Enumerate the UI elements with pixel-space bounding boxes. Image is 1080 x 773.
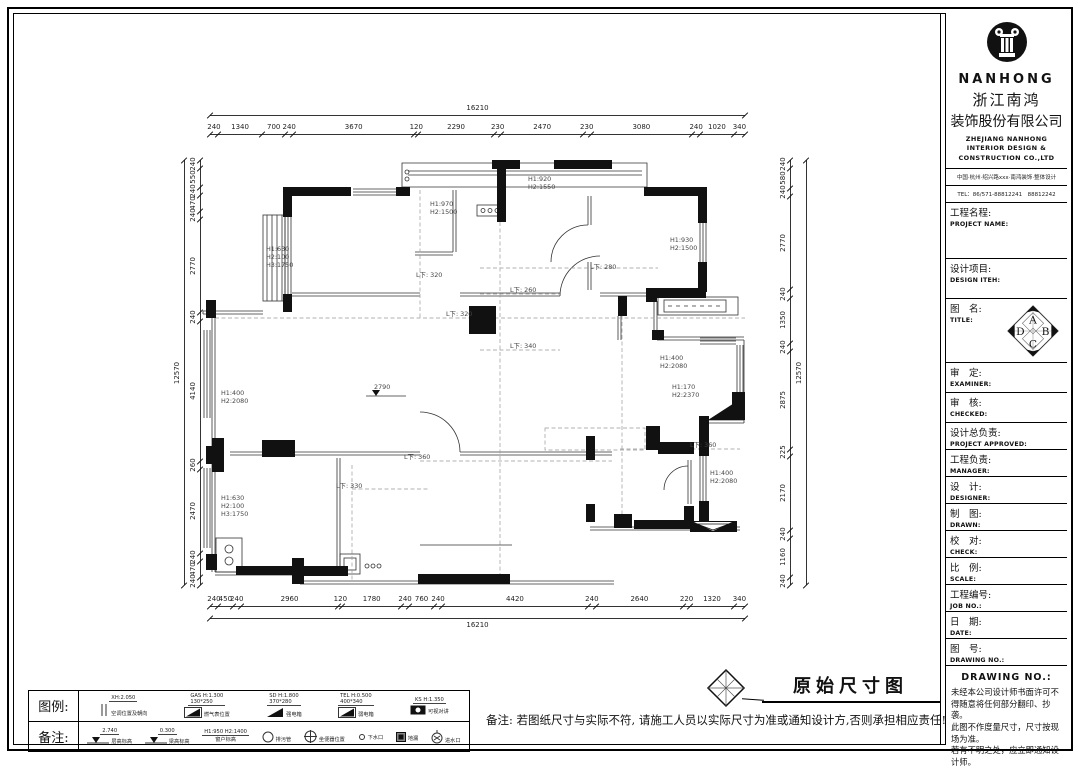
dim-value: 260 <box>189 458 197 471</box>
plan-annotation: L下: 320 <box>446 310 472 318</box>
company-address: 中国·杭州·绍兴路xxx·南鸿装饰·整体设计 <box>946 168 1067 185</box>
notice-title: DRAWING NO.: <box>951 672 1062 683</box>
dim-value: 1160 <box>779 548 787 566</box>
legend-item-label: 窗户标高 <box>215 737 236 743</box>
legend-row-label: 图例: <box>29 691 79 721</box>
dim-value: 120 <box>334 595 347 603</box>
dim-value: 230 <box>491 123 504 131</box>
dim-value: 2770 <box>189 257 197 275</box>
dim-value: 240 <box>779 157 787 170</box>
dim-value: 120 <box>410 123 423 131</box>
plan-annotation: H1:970 <box>430 200 453 208</box>
dim-value: 240 <box>779 341 787 354</box>
field-label-cn: 设 计: <box>950 479 1063 493</box>
dim-value: 4420 <box>506 595 524 603</box>
plan-annotation: H2:1550 <box>528 183 555 191</box>
field-label-en: DRAWING NO.: <box>950 656 1063 665</box>
dim-value: 550 <box>189 171 197 184</box>
plan-annotation: L下: 320 <box>416 271 442 279</box>
dim-value: 2640 <box>630 595 648 603</box>
dim-value: 240 <box>431 595 444 603</box>
titleblock-field-manager: 工程负责:MANAGER: <box>946 450 1067 477</box>
dim-value: 2960 <box>281 595 299 603</box>
svg-text:A: A <box>1028 314 1037 327</box>
dim-value: 12570 <box>795 361 803 383</box>
dim-value: 3670 <box>345 123 363 131</box>
legend-item-code: SD H:1.800370*280 <box>267 693 300 706</box>
company-stamp-icon <box>706 668 746 708</box>
legend-item-label: 可视对讲 <box>428 709 449 715</box>
legend-item: GAS H:1.300130*250燃气表位置 <box>184 693 230 718</box>
company-name-cn-2: 装饰股份有限公司 <box>946 111 1067 131</box>
plan-annotation: L下: 330 <box>336 482 362 490</box>
plan-annotation: L下: 340 <box>510 342 536 350</box>
field-label-en: CHECK: <box>950 548 1063 557</box>
notice-line: 此图不作度量尺寸，尺寸按现场为准。 <box>951 722 1062 745</box>
legend-item-code: KS H:1.350 <box>413 697 446 704</box>
orientation-compass: A B C D <box>1005 303 1061 359</box>
dim-value: 1350 <box>779 312 787 330</box>
svg-text:C: C <box>1029 338 1037 351</box>
field-label-cn: 工程编号: <box>950 587 1063 601</box>
plan-annotation: H2:2080 <box>660 362 687 370</box>
dim-value: 700 <box>267 123 280 131</box>
field-label-en: PROJECT APPROVED: <box>950 440 1063 449</box>
notice-line: 未经本公司设计师书面许可不得随意将任何部分翻印、抄袭。 <box>951 687 1062 722</box>
titleblock-outer-line <box>940 13 941 745</box>
legend-item-label: 进水口 <box>445 738 461 744</box>
legend-item-label: 弱电箱 <box>358 712 374 718</box>
sewage-pipe-icon <box>262 731 274 743</box>
dim-value: 1020 <box>708 123 726 131</box>
dim-value: 340 <box>733 595 746 603</box>
field-label-en: MANAGER: <box>950 467 1063 476</box>
dim-value: 760 <box>415 595 428 603</box>
titleblock-field-scale: 比 例:SCALE: <box>946 558 1067 585</box>
dim-value: 1320 <box>703 595 721 603</box>
legend-item: 2.740层高标高 <box>87 728 132 745</box>
legend-row: 图例: XH:2.050空调位置及朝向GAS H:1.300130*250燃气表… <box>29 691 469 722</box>
field-label-en: JOB NO.: <box>950 602 1063 611</box>
dim-value: 1340 <box>231 123 249 131</box>
legend-item-label: 层高标高 <box>111 739 132 745</box>
notice-line: 若有不明之处，应立即通知设计师。 <box>951 745 1062 768</box>
plan-annotation: H1:630 <box>266 245 289 253</box>
legend-item: 进水口 <box>431 729 461 744</box>
dim-value: 16210 <box>466 621 488 629</box>
dim-value: 2290 <box>447 123 465 131</box>
field-label-cn: 设计总负责: <box>950 425 1063 439</box>
field-label-cn: 图 号: <box>950 641 1063 655</box>
company-en-line: CONSTRUCTION CO.,LTD <box>946 154 1067 163</box>
dim-value: 2470 <box>189 502 197 520</box>
dim-value: 225 <box>779 446 787 459</box>
drain-outlet-icon <box>358 733 366 741</box>
dim-right-segments: 2405802402770240135024028752252170240116… <box>778 160 792 585</box>
dim-value: 580 <box>779 171 787 184</box>
dim-value: 240 <box>779 185 787 198</box>
dim-value: 240 <box>189 310 197 323</box>
legend-item-label: 坐便器位置 <box>319 737 345 743</box>
company-en-line: INTERIOR DESIGN & <box>946 144 1067 153</box>
plan-annotation: H2:2080 <box>710 477 737 485</box>
legend-item: 地漏 <box>396 731 418 742</box>
dim-value: 12570 <box>173 361 181 383</box>
titleblock-field-job-no: 工程编号:JOB NO.: <box>946 585 1067 612</box>
titleblock-field-drawn: 制 图:DRAWN: <box>946 504 1067 531</box>
company-tel: TEL：86/571-88812241 88812242 <box>946 185 1067 202</box>
legend-item-code: 2.740 <box>100 728 119 735</box>
intercom-icon <box>410 705 426 715</box>
plan-annotation: H2:2080 <box>221 397 248 405</box>
field-label-en: DESIGNER: <box>950 494 1063 503</box>
plan-annotation: H1:400 <box>221 389 244 397</box>
floor-drain-icon <box>396 732 406 742</box>
dim-value: 340 <box>733 123 746 131</box>
svg-text:D: D <box>1016 325 1025 338</box>
plan-annotation: L下: 360 <box>404 453 430 461</box>
field-label-en: SCALE: <box>950 575 1063 584</box>
company-name-cn-1: 浙江南鸿 <box>946 89 1067 110</box>
legend-item-label: 下水口 <box>368 735 384 741</box>
dim-value: 220 <box>680 595 693 603</box>
dim-value: 4140 <box>189 382 197 400</box>
notes-row: 备注: 2.740层高标高0.300梁高标高H1:950 H2:1400窗户标高… <box>29 722 469 752</box>
legend-item-code: GAS H:1.300130*250 <box>188 693 225 706</box>
dim-value: 240 <box>189 574 197 587</box>
company-en-line: ZHEJIANG NANHONG <box>946 135 1067 144</box>
plan-annotation: H2:100 <box>266 253 289 261</box>
plan-annotation: L下: 360 <box>690 441 716 449</box>
field-label-en: PROJECT NAME: <box>950 220 1063 229</box>
legend-item: XH:2.050空调位置及朝向 <box>99 695 147 717</box>
titleblock-field-design-iteh: 设计项目:DESIGN ITEH: <box>946 259 1067 299</box>
level-mark-icon <box>87 736 109 745</box>
dim-value: 2770 <box>779 234 787 252</box>
field-label-en: CHECKED: <box>950 410 1063 419</box>
notice-lines: 未经本公司设计师书面许可不得随意将任何部分翻印、抄袭。此图不作度量尺寸，尺寸按现… <box>951 687 1062 768</box>
field-label-cn: 工程名程: <box>950 205 1063 219</box>
toilet-position-icon <box>304 730 317 743</box>
construction-note: 备注: 若图纸尺寸与实际不符, 请施工人员以实际尺寸为准或通知设计方,否则承担相… <box>486 712 938 728</box>
plan-annotation: H3:1750 <box>266 261 293 269</box>
logo-wordmark: NANHONG <box>946 72 1067 87</box>
plan-annotation: H2:1500 <box>430 208 457 216</box>
drawing-title-underline <box>762 701 940 703</box>
dim-value: 240 <box>779 527 787 540</box>
legend-item: 下水口 <box>358 732 384 741</box>
dim-value: 240 <box>779 574 787 587</box>
dim-left-segments: 2405502404702402770240414026024702404702… <box>188 160 202 585</box>
copyright-notice: DRAWING NO.: 未经本公司设计师书面许可不得随意将任何部分翻印、抄袭。… <box>946 666 1067 772</box>
plan-annotation: H1:170 <box>672 383 695 391</box>
titleblock-field-examiner: 审 定:EXAMINER: <box>946 363 1067 393</box>
legend-items: XH:2.050空调位置及朝向GAS H:1.300130*250燃气表位置SD… <box>79 691 469 721</box>
dim-value: 240 <box>689 123 702 131</box>
field-label-cn: 制 图: <box>950 506 1063 520</box>
legend-item: 排污管 <box>262 730 292 743</box>
legend-item: 0.300梁高标高 <box>145 728 190 745</box>
plan-annotation: H1:400 <box>660 354 683 362</box>
field-label-cn: 校 对: <box>950 533 1063 547</box>
legend-item: SD H:1.800370*280强电箱 <box>266 693 302 718</box>
dim-value: 240 <box>207 123 220 131</box>
dim-value: 1780 <box>363 595 381 603</box>
plan-annotation: H2:2370 <box>672 391 699 399</box>
field-label-cn: 比 例: <box>950 560 1063 574</box>
legend-item-label: 排污管 <box>276 737 292 743</box>
dim-value: 240 <box>189 208 197 221</box>
titleblock-field-title: 图 名:TITLE: A B C D <box>946 299 1067 363</box>
power-box-icon <box>266 707 284 718</box>
titleblock-field-designer: 设 计:DESIGNER: <box>946 477 1067 504</box>
dim-value: 240 <box>189 157 197 170</box>
legend-item-label: 梁高标高 <box>169 739 190 745</box>
dim-value: 240 <box>283 123 296 131</box>
dim-top-segments: 2401340700240367012022902302470230308024… <box>210 122 745 138</box>
company-logo-block: NANHONG 浙江南鸿 装饰股份有限公司 ZHEJIANG NANHONG I… <box>946 13 1067 163</box>
plan-annotation: H1:930 <box>670 236 693 244</box>
plan-annotation: 2790 <box>374 383 390 391</box>
dim-value: 230 <box>580 123 593 131</box>
titleblock-field-date: 日 期:DATE: <box>946 612 1067 639</box>
field-label-cn: 日 期: <box>950 614 1063 628</box>
dim-bottom-total: 16210 <box>210 616 745 632</box>
field-label-en: DATE: <box>950 629 1063 638</box>
titleblock-field-project-name: 工程名程:PROJECT NAME: <box>946 203 1067 259</box>
gas-meter-icon <box>184 707 202 718</box>
plan-annotation: H2:100 <box>221 502 244 510</box>
drawing-title: 原始尺寸图 <box>793 672 908 698</box>
field-label-en: DRAWN: <box>950 521 1063 530</box>
legend-item-code: H1:950 H2:1400 <box>202 729 249 736</box>
dim-value: 240 <box>585 595 598 603</box>
legend-item-label: 地漏 <box>408 736 418 742</box>
field-label-en: DESIGN ITEH: <box>950 276 1063 285</box>
telecom-box-icon <box>338 707 356 718</box>
dim-value: 240 <box>398 595 411 603</box>
legend-item: KS H:1.350可视对讲 <box>410 697 449 715</box>
level-mark-icon <box>145 736 167 745</box>
plan-annotations: H1:630H2:100H3:1750H1:970H2:1500H1:920H2… <box>221 175 737 518</box>
plan-annotation: L下: 280 <box>590 263 616 271</box>
titleblock-fields: 工程名程:PROJECT NAME:设计项目:DESIGN ITEH:图 名:T… <box>946 202 1067 666</box>
legend-item: TEL H:0.500400*340弱电箱 <box>338 693 374 718</box>
plan-annotation: H1:920 <box>528 175 551 183</box>
dim-right-total: 12570 <box>794 160 808 585</box>
legend-item-code: XH:2.050 <box>109 695 137 702</box>
titleblock-field-checked: 审 核:CHECKED: <box>946 393 1067 423</box>
legend-item: 坐便器位置 <box>304 729 345 743</box>
field-label-en: EXAMINER: <box>950 380 1063 389</box>
dim-top-total: 16210 <box>210 103 745 119</box>
legend-item: H1:950 H2:1400窗户标高 <box>202 729 249 743</box>
notes-row-label: 备注: <box>29 722 79 752</box>
plan-annotation: H2:1500 <box>670 244 697 252</box>
field-label-cn: 设计项目: <box>950 261 1063 275</box>
titleblock-field-check: 校 对:CHECK: <box>946 531 1067 558</box>
dim-left-total: 12570 <box>172 160 186 585</box>
field-label-cn: 审 核: <box>950 395 1063 409</box>
legend-item-code: 0.300 <box>158 728 177 735</box>
titleblock: NANHONG 浙江南鸿 装饰股份有限公司 ZHEJIANG NANHONG I… <box>945 13 1067 745</box>
ac-unit-icon <box>99 703 109 717</box>
dim-value: 2470 <box>533 123 551 131</box>
dim-bottom-segments: 2404502402960120178024076024044202402640… <box>210 594 745 610</box>
dim-value: 16210 <box>466 104 488 112</box>
company-name-en: ZHEJIANG NANHONG INTERIOR DESIGN & CONST… <box>946 135 1067 163</box>
water-inlet-icon <box>431 730 443 744</box>
legend-item-label: 强电箱 <box>286 712 302 718</box>
plan-annotation: H1:630 <box>221 494 244 502</box>
plan-annotation: L下: 260 <box>510 286 536 294</box>
field-label-cn: 工程负责: <box>950 452 1063 466</box>
legend-item-label: 燃气表位置 <box>204 712 230 718</box>
dim-value: 240 <box>230 595 243 603</box>
dim-value: 2875 <box>779 391 787 409</box>
plan-annotation: H1:400 <box>710 469 733 477</box>
nanhong-logo-icon <box>984 21 1030 65</box>
legend-table: 图例: XH:2.050空调位置及朝向GAS H:1.300130*250燃气表… <box>28 690 470 752</box>
titleblock-field-project-approved: 设计总负责:PROJECT APPROVED: <box>946 423 1067 450</box>
dim-value: 3080 <box>632 123 650 131</box>
plan-annotation: H3:1750 <box>221 510 248 518</box>
svg-text:B: B <box>1042 325 1050 338</box>
dim-value: 2170 <box>779 484 787 502</box>
field-label-cn: 审 定: <box>950 365 1063 379</box>
legend-item-label: 空调位置及朝向 <box>111 711 147 717</box>
note-items: 2.740层高标高0.300梁高标高H1:950 H2:1400窗户标高排污管坐… <box>79 722 469 752</box>
dim-value: 240 <box>779 287 787 300</box>
titleblock-field-drawing-no: 图 号:DRAWING NO.: <box>946 639 1067 666</box>
legend-item-code: TEL H:0.500400*340 <box>338 693 374 706</box>
